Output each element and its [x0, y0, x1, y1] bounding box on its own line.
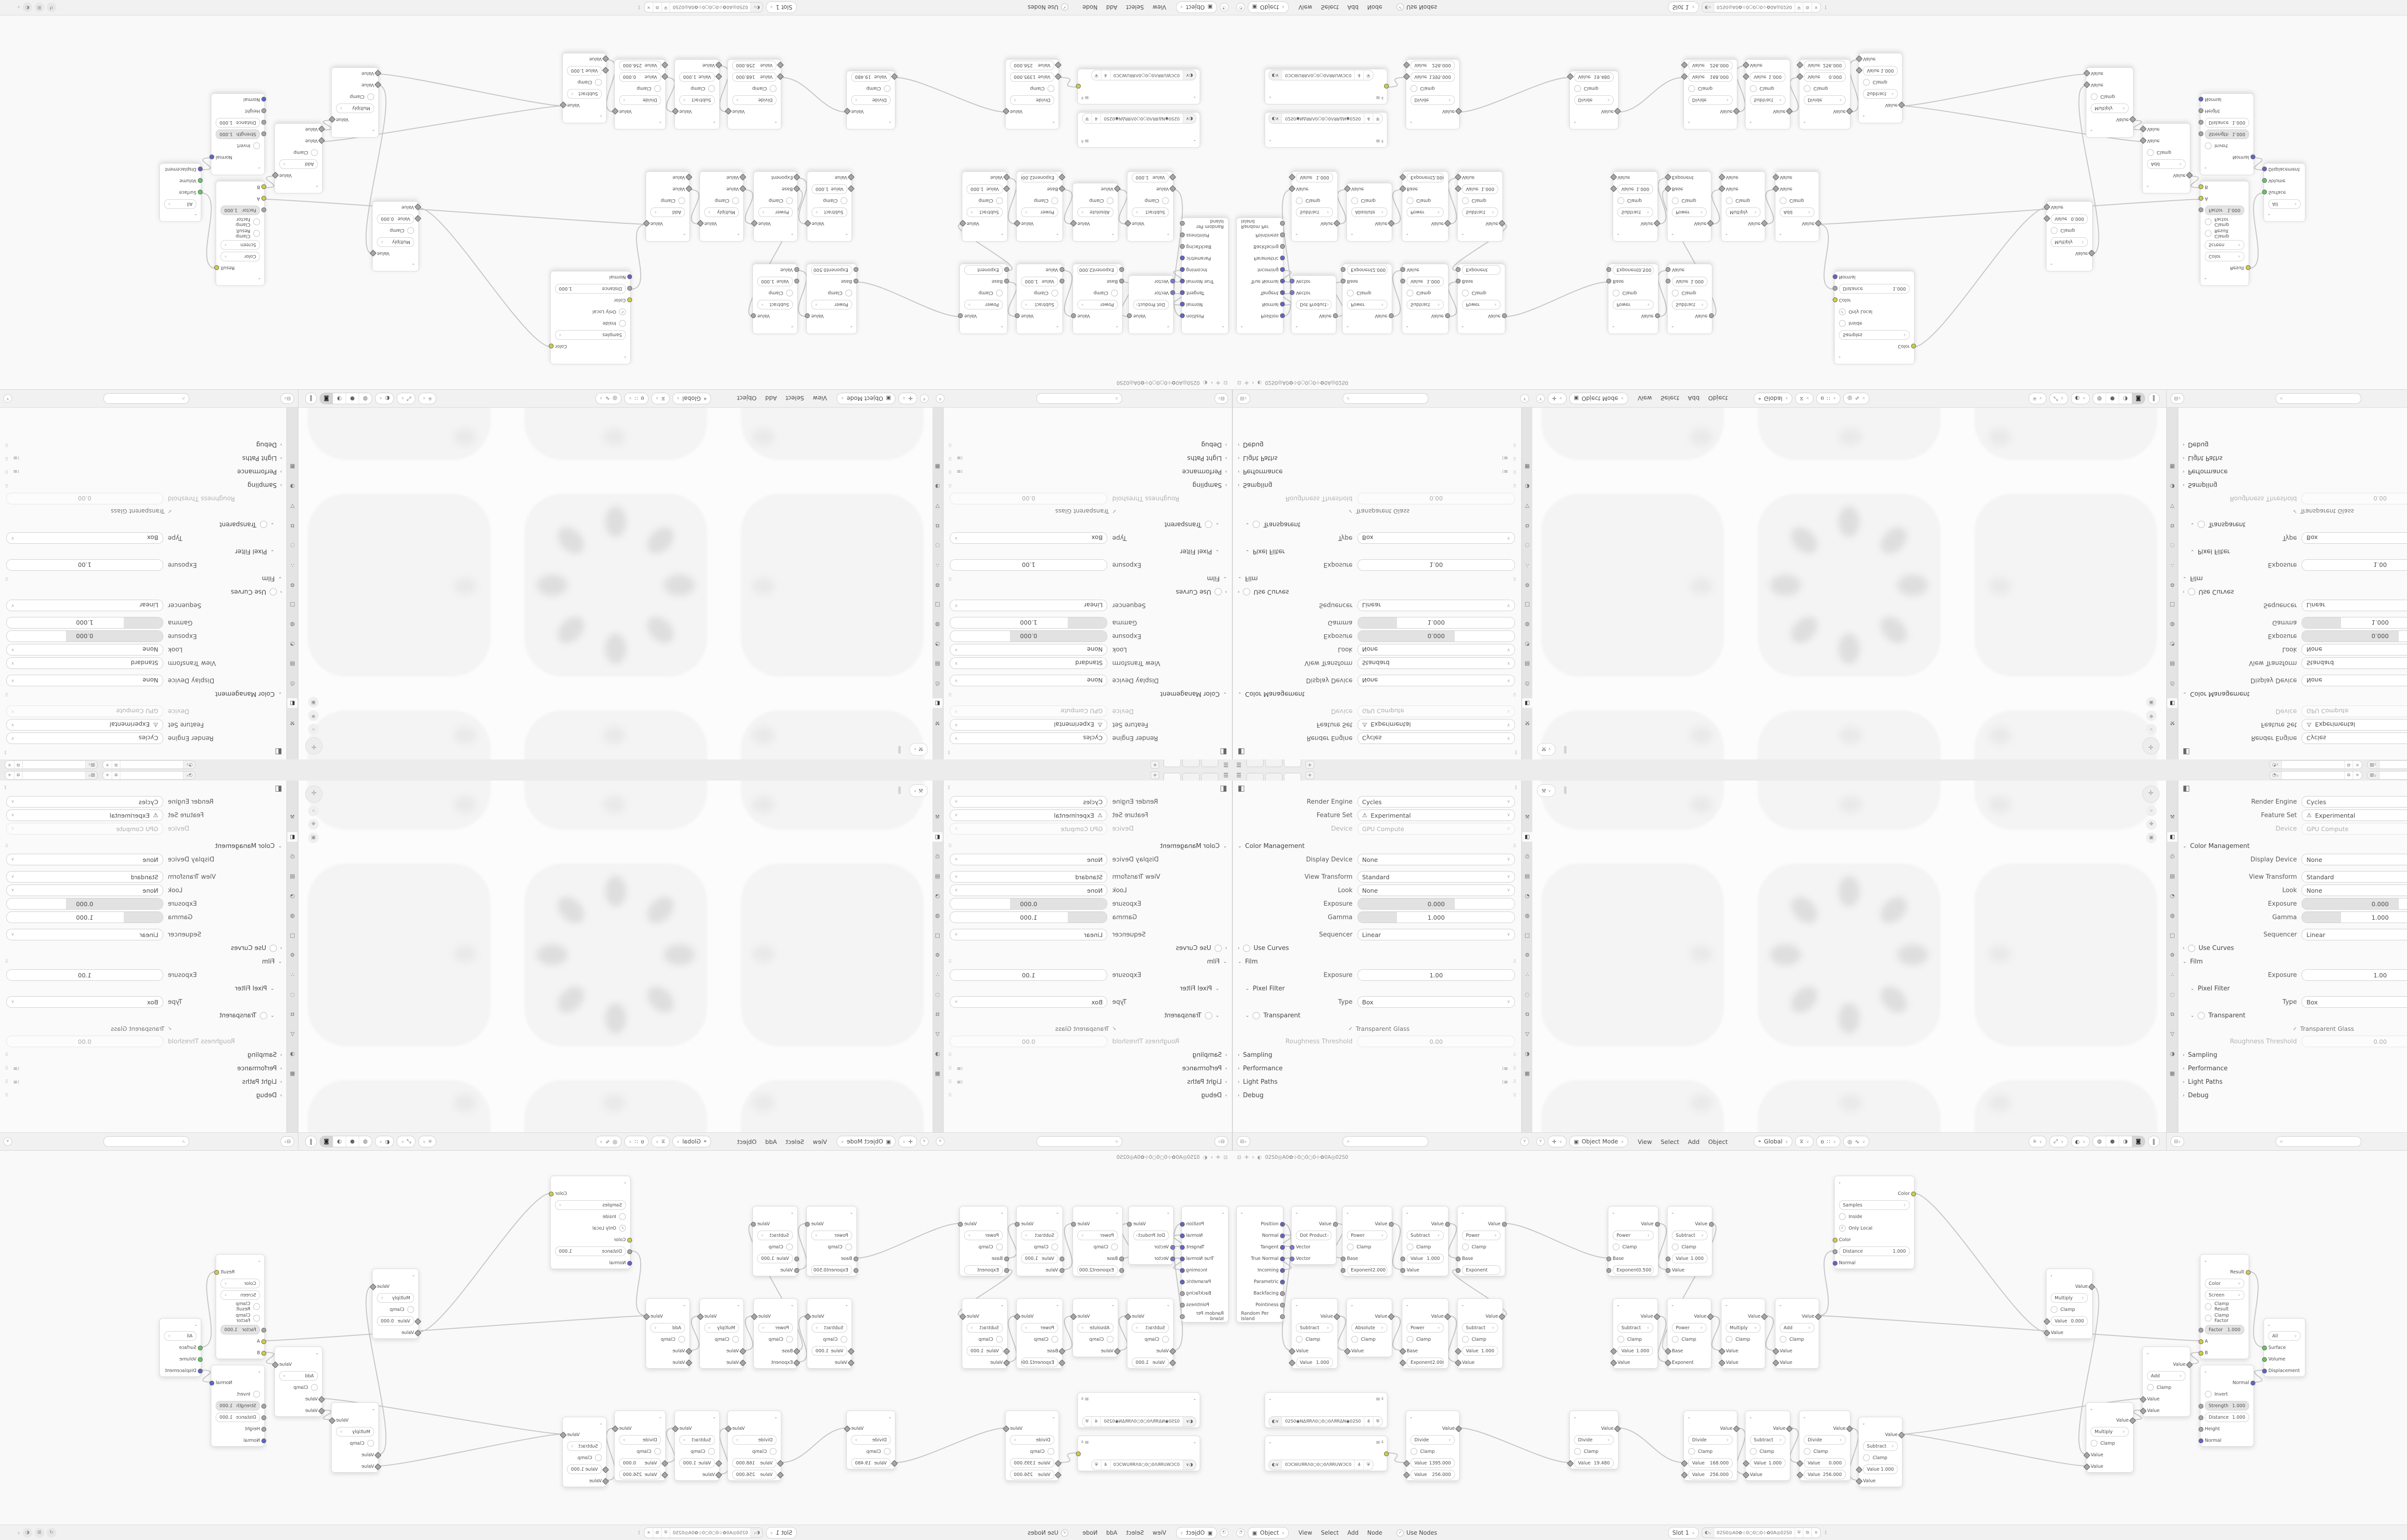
node-dropdown[interactable]: Power∨ — [1613, 1231, 1654, 1240]
dropdown[interactable]: Standard∨ — [950, 871, 1107, 883]
properties-tab-output[interactable]: ⎙ — [287, 679, 298, 688]
node-number-field[interactable]: Value256.000 — [1010, 1470, 1054, 1479]
preset-list-icon[interactable]: ⁝≡ — [13, 455, 19, 462]
menu-add[interactable]: Add — [765, 395, 777, 402]
socket[interactable] — [1003, 1360, 1010, 1366]
chevron-down-icon[interactable]: ⌄ — [2204, 1258, 2207, 1263]
socket[interactable] — [1015, 313, 1020, 318]
checkbox[interactable] — [270, 589, 277, 596]
socket[interactable] — [1455, 1425, 1462, 1432]
node[interactable]: ⌄ValueMultiply∨ClampValueValue — [331, 1402, 379, 1473]
socket[interactable] — [1665, 1360, 1671, 1366]
socket[interactable] — [261, 120, 266, 125]
chevron-down-icon[interactable]: ⌄ — [1056, 233, 1059, 238]
socket[interactable] — [272, 172, 279, 179]
scene-icon[interactable]: ◔∨ — [183, 761, 195, 769]
node-number-field[interactable]: Factor1.000 — [2205, 205, 2244, 215]
node-header[interactable]: ⌄ — [160, 1319, 201, 1330]
copy-icon[interactable]: ⧉ — [2344, 761, 2353, 769]
socket[interactable] — [1059, 1360, 1065, 1366]
checkbox-row[interactable]: ✓Transparent Glass — [2178, 1022, 2407, 1035]
chevron-down-icon[interactable]: ⌄ — [1000, 1303, 1004, 1307]
section-header[interactable]: ›Light Paths⁝≡⠿ — [2178, 451, 2407, 465]
node-number-field[interactable]: Value1.000 — [1863, 66, 1898, 76]
socket[interactable] — [1833, 1249, 1838, 1254]
socket[interactable] — [2083, 1452, 2090, 1459]
chevron-down-icon[interactable]: ⌄ — [2267, 1322, 2271, 1327]
dropdown[interactable]: ⚠Experimental∨ — [1358, 719, 1515, 731]
checkbox[interactable] — [407, 1306, 414, 1313]
checkbox[interactable] — [1839, 320, 1846, 327]
properties-tab-view-layer[interactable]: ▤ — [287, 659, 298, 668]
node[interactable]: ⌄ValuePower∨ClampBaseExponent — [1457, 264, 1505, 334]
navigation-gizmo[interactable]: ✛ — [2142, 785, 2160, 803]
socket[interactable] — [261, 1404, 266, 1409]
socket[interactable] — [560, 102, 567, 108]
properties-tab-tool[interactable]: ⚒ — [1522, 718, 1532, 728]
node-dropdown[interactable]: Subtract∨ — [1750, 95, 1786, 105]
node[interactable]: ⌄ValuePower∨ClampBaseExponent2.000 — [1073, 1206, 1123, 1276]
scene-icon[interactable]: ◔∨ — [2270, 761, 2281, 769]
chevron-down-icon[interactable]: ⌄ — [1346, 1210, 1349, 1215]
properties-tab-tool[interactable]: ⚒ — [2167, 812, 2177, 822]
socket[interactable] — [793, 1348, 800, 1355]
checkbox-row[interactable]: ✓Transparent Glass — [0, 1022, 287, 1035]
properties-tab-physics[interactable]: ◌ — [1522, 990, 1532, 1000]
shading-material-preview-icon[interactable]: ◑ — [333, 1136, 346, 1147]
section-header[interactable]: ›Performance⁝≡⠿ — [943, 1062, 1232, 1075]
node-dropdown[interactable]: Multiply∨ — [704, 1323, 739, 1333]
socket[interactable] — [1399, 174, 1406, 180]
datablock-name[interactable]: 02S0◉NΔЯRΛ0○0○0ΛЯRΔN◉02S0 — [1101, 114, 1183, 123]
toolbar-grip[interactable] — [898, 786, 901, 794]
properties-tab-material[interactable]: ◑ — [287, 481, 298, 491]
menu-select[interactable]: Select — [1321, 4, 1339, 11]
use-nodes-checkbox[interactable]: ✓Use Nodes — [1397, 4, 1437, 11]
socket[interactable] — [1567, 73, 1574, 80]
section-header[interactable]: ›Light Paths⁝≡⠿ — [943, 1075, 1232, 1089]
node-header[interactable]: ⌄ — [847, 117, 895, 129]
number-field[interactable]: 1.00 — [2302, 559, 2407, 571]
slider[interactable]: 0.000 — [6, 630, 163, 642]
users-count[interactable]: 4 — [1092, 1417, 1101, 1426]
copy-icon[interactable]: ⧉ — [112, 771, 120, 779]
properties-tab-object-data[interactable]: ▽ — [1522, 1029, 1532, 1039]
material-ball-icon[interactable]: ◐ — [23, 1528, 32, 1538]
node-header[interactable]: ⌄ — [1127, 230, 1173, 241]
socket[interactable] — [1898, 1432, 1905, 1438]
socket[interactable] — [612, 1425, 619, 1432]
dropdown[interactable]: None∨ — [6, 854, 163, 865]
slider[interactable]: 0.000 — [1358, 630, 1515, 642]
material-ball-icon[interactable]: ◐∨ — [1183, 1417, 1196, 1426]
chevron-down-icon[interactable]: ⌄ — [888, 1415, 892, 1419]
properties-tab-render[interactable]: ◧ — [287, 698, 298, 708]
material-ball-icon[interactable]: ◐∨ — [1269, 70, 1281, 80]
node[interactable]: ⌄ValueSubtract∨ClampValue1.000Value — [1016, 1206, 1063, 1276]
checkbox-row[interactable]: ✓Transparent Glass — [1233, 505, 1522, 518]
chevron-down-icon[interactable]: ⌄ — [1461, 326, 1464, 330]
node-header[interactable]: ⌄ — [1608, 1206, 1658, 1218]
node[interactable]: ⌄ValuePower∨ClampBaseExponent — [753, 171, 798, 242]
snap-target-button[interactable]: ⧖∨ — [1795, 393, 1813, 404]
editor-type-button[interactable]: ◔ — [1236, 1528, 1245, 1537]
properties-tab-render[interactable]: ◧ — [2167, 832, 2177, 842]
properties-tab-object-data[interactable]: ▽ — [932, 501, 943, 511]
node-dropdown[interactable]: Power∨ — [1407, 1323, 1444, 1333]
slider[interactable]: 1.000 — [2302, 617, 2407, 629]
socket[interactable] — [1076, 84, 1081, 89]
checkbox[interactable] — [1351, 197, 1358, 204]
socket[interactable] — [1786, 108, 1793, 115]
checkbox[interactable] — [1243, 589, 1250, 596]
socket[interactable] — [1833, 1261, 1838, 1266]
node-number-field[interactable]: Value1.000 — [567, 66, 602, 76]
socket[interactable] — [1743, 62, 1749, 68]
node[interactable]: ⌄ValuePower∨ClampBaseExponent2.000 — [1073, 264, 1123, 334]
chevron-down-icon[interactable]: ⌄ — [1166, 1303, 1170, 1307]
node[interactable]: ⌄ValueAbsolute∨ClampValue — [1073, 183, 1118, 242]
node-dropdown[interactable]: Power∨ — [758, 1323, 793, 1333]
snap-target-button[interactable]: ⧖∨ — [651, 393, 670, 404]
node-dropdown[interactable]: Subtract∨ — [1672, 1231, 1708, 1240]
node-number-field[interactable]: Strength1.000 — [2205, 129, 2249, 139]
node-number-field[interactable]: Exponent2.000 — [1347, 1265, 1387, 1275]
chevron-down-icon[interactable]: ∨ — [3, 394, 12, 403]
node-header[interactable]: ⌄ — [1721, 1299, 1765, 1310]
node-dropdown[interactable]: Subtract∨ — [1407, 1231, 1444, 1240]
search-input[interactable]: ⌕ — [1343, 1136, 1428, 1147]
socket[interactable] — [686, 1360, 692, 1366]
socket[interactable] — [1743, 73, 1749, 80]
properties-tab-tool[interactable]: ⚒ — [287, 812, 298, 822]
section-header[interactable]: ⌄Transparent — [2178, 1009, 2407, 1022]
socket[interactable] — [2140, 1396, 2147, 1403]
checkbox[interactable] — [1672, 1336, 1679, 1343]
viewlayer-selector[interactable]: ▨∨ ⧉ × — [5, 771, 98, 780]
socket[interactable] — [1773, 174, 1779, 180]
socket[interactable] — [627, 274, 632, 279]
chevron-down-icon[interactable]: ⌄ — [258, 167, 261, 171]
checkbox[interactable] — [1051, 1336, 1058, 1343]
section-header[interactable]: ›Light Paths⁝≡⠿ — [0, 451, 287, 465]
properties-tab-object[interactable]: □ — [932, 600, 943, 609]
mode-selector[interactable]: ▣Object Mode∨ — [1569, 393, 1628, 404]
node-dropdown[interactable]: Subtract∨ — [1462, 1323, 1498, 1333]
node-header[interactable]: ⌄▤ 4 — [1078, 92, 1200, 104]
socket[interactable] — [1280, 279, 1285, 283]
properties-tab-view-layer[interactable]: ▤ — [932, 659, 943, 668]
checkbox[interactable] — [2205, 230, 2212, 237]
pan-icon[interactable]: ✥ — [308, 819, 319, 830]
slot-selector[interactable]: Slot 1∨ — [1668, 1527, 1699, 1539]
node[interactable]: ⌄ValuePower∨ClampBaseExponent2.000 — [1342, 1206, 1392, 1276]
section-header[interactable]: ⌄Pixel Filter — [2178, 545, 2407, 558]
socket[interactable] — [1456, 1257, 1461, 1261]
socket[interactable] — [1743, 1472, 1749, 1478]
properties-tab-material[interactable]: ◑ — [932, 481, 943, 491]
copy-icon[interactable]: ⧉ — [1803, 2, 1811, 12]
checkbox[interactable] — [1407, 197, 1413, 204]
node-number-field[interactable]: Value0.000 — [2051, 1316, 2088, 1326]
camera-view-icon[interactable]: ▣ — [308, 697, 319, 707]
scene-icon[interactable]: ◔∨ — [2270, 771, 2281, 779]
node-number-field[interactable]: Value256.000 — [732, 61, 776, 70]
chevron-down-icon[interactable]: ⌄ — [1000, 1210, 1004, 1215]
socket[interactable] — [261, 1427, 266, 1432]
section-header[interactable]: ⌄Transparent — [1233, 518, 1522, 531]
node[interactable]: ⌄ValueAbsolute∨ClampValue — [1346, 1298, 1392, 1357]
section-header[interactable]: ⌄Film⠿ — [2178, 955, 2407, 968]
checkbox[interactable] — [732, 1336, 739, 1343]
checkbox[interactable] — [1048, 85, 1054, 92]
checkbox[interactable] — [1726, 1336, 1733, 1343]
checkbox[interactable] — [619, 320, 626, 327]
menu-view[interactable]: View — [1298, 4, 1312, 11]
shading-rendered-icon[interactable]: ◙ — [2132, 1136, 2145, 1147]
checkbox[interactable] — [407, 227, 414, 234]
node[interactable]: ⌄▤ 4◐∨02S0◉NΔЯRΛ0○0○0ΛЯRΔN◉02S04⛨ — [1265, 1392, 1387, 1428]
socket[interactable] — [1719, 1348, 1725, 1355]
node[interactable]: ⌄ValuePower∨ClampBaseExponent2.000 — [1402, 171, 1449, 242]
node-number-field[interactable]: Value256.000 — [1010, 61, 1054, 70]
dropdown[interactable]: Cycles∨ — [6, 732, 163, 744]
node-header[interactable]: ⌄ — [1402, 230, 1448, 241]
mode-selector[interactable]: ▣Object Mode∨ — [837, 1136, 895, 1147]
node-dropdown[interactable]: Divide∨ — [1688, 95, 1733, 105]
shader-type-selector[interactable]: ▣Object∨ — [1248, 1, 1289, 13]
dropdown[interactable]: Standard∨ — [2302, 657, 2407, 669]
node-number-field[interactable]: Value1.000 — [1462, 1346, 1498, 1356]
search-input[interactable]: ⌕ — [1036, 1136, 1122, 1147]
properties-tab-view-layer[interactable]: ▤ — [287, 872, 298, 881]
node-header[interactable]: ⌄ — [1402, 1299, 1448, 1310]
socket[interactable] — [793, 185, 800, 192]
pin-icon[interactable]: ⟟ — [948, 749, 950, 756]
checkbox[interactable] — [367, 1440, 374, 1447]
chevron-down-icon[interactable]: ⌄ — [845, 1303, 848, 1307]
section-header[interactable]: ›Sampling⠿ — [1233, 1048, 1522, 1062]
socket[interactable] — [2262, 1369, 2267, 1373]
socket[interactable] — [2129, 1417, 2136, 1424]
node-number-field[interactable]: Distance1.000 — [2205, 118, 2249, 128]
socket[interactable] — [804, 1313, 811, 1320]
close-icon[interactable]: × — [2353, 761, 2362, 769]
socket[interactable] — [1289, 185, 1295, 192]
users-count[interactable]: 4 — [1101, 70, 1111, 80]
node-number-field[interactable]: Exponent2.000 — [1407, 173, 1444, 182]
pin-icon[interactable]: ⟟ — [1825, 1529, 1826, 1536]
dropdown[interactable]: Linear∨ — [6, 600, 163, 611]
chevron-down-icon[interactable]: ⌄ — [1573, 1415, 1577, 1419]
node-dropdown[interactable]: Multiply∨ — [336, 103, 374, 113]
checkbox[interactable] — [1111, 1244, 1118, 1250]
properties-tab-particles[interactable]: ∴ — [932, 560, 943, 570]
socket[interactable] — [1610, 185, 1617, 192]
dropdown[interactable]: ⚠Experimental∨ — [2302, 719, 2407, 731]
properties-tab-scene[interactable]: ◔ — [932, 639, 943, 649]
socket[interactable] — [2129, 116, 2136, 123]
socket[interactable] — [602, 1478, 609, 1485]
menu-add[interactable]: Add — [1688, 395, 1699, 402]
node-dropdown[interactable]: Subtract∨ — [757, 1231, 793, 1240]
datablock-field[interactable]: ◐∨0ϽCWUЯRΛ0○0○0ΛЯRUWϽC04⛨ — [1268, 1460, 1373, 1470]
dropdown[interactable]: Cycles∨ — [2302, 732, 2407, 744]
dropdown[interactable]: None∨ — [950, 854, 1107, 865]
socket[interactable] — [329, 1417, 336, 1424]
properties-tab-physics[interactable]: ◌ — [2167, 540, 2177, 550]
socket[interactable] — [1180, 290, 1185, 295]
socket[interactable] — [1733, 108, 1740, 115]
shield-icon[interactable]: ⛨ — [1083, 1417, 1092, 1426]
node[interactable]: ⌄NormalInvertStrength1.000Distance1.000H… — [2200, 1365, 2254, 1447]
section-header[interactable]: ⌄Color Management⠿ — [943, 687, 1232, 701]
chevron-down-icon[interactable]: ⌄ — [737, 233, 740, 238]
node[interactable]: ⌄ValueSubtract∨ClampValue1.000Value — [1667, 264, 1712, 334]
shading-rendered-icon[interactable]: ◙ — [320, 393, 333, 404]
properties-tab-texture[interactable]: ▦ — [287, 1069, 298, 1078]
properties-tab-particles[interactable]: ∴ — [287, 970, 298, 980]
socket[interactable] — [2199, 207, 2203, 212]
datablock-name[interactable]: 02S0◉NΔЯRΛ0○0○0ΛЯRΔN◉02S0 — [1101, 1417, 1183, 1426]
node-dropdown[interactable]: Power∨ — [1613, 300, 1654, 309]
chevron-down-icon[interactable]: ⌄ — [1240, 1210, 1243, 1215]
node-header[interactable]: ⌄ — [615, 117, 665, 129]
section-header[interactable]: ›Sampling⠿ — [0, 478, 287, 492]
node-dropdown[interactable]: Multiply∨ — [336, 1427, 374, 1437]
pin-icon[interactable]: ⟟ — [4, 749, 6, 756]
node-header[interactable]: ⌄ — [675, 1411, 719, 1423]
chevron-down-icon[interactable]: ⌄ — [315, 185, 319, 190]
node-dropdown[interactable]: Divide∨ — [732, 95, 776, 105]
socket[interactable] — [958, 313, 963, 318]
node[interactable]: ⌄ValuePower∨ClampBaseExponent2.000 — [1016, 1298, 1063, 1369]
editor-type-button[interactable]: ◔ — [1220, 1528, 1229, 1537]
close-icon[interactable]: × — [645, 1528, 654, 1538]
socket[interactable] — [602, 55, 609, 62]
chevron-down-icon[interactable]: ⌄ — [2090, 129, 2093, 134]
socket[interactable] — [1681, 1472, 1688, 1478]
viewlayer-selector[interactable]: ▨∨ ⧉ × — [5, 760, 98, 769]
properties-tab-object-data[interactable]: ▽ — [2167, 501, 2177, 511]
scene-selector[interactable]: ◔∨ ⧉ × — [2269, 771, 2362, 780]
dropdown[interactable]: Cycles∨ — [2302, 796, 2407, 808]
menu-view[interactable]: View — [1152, 1529, 1166, 1536]
node-header[interactable]: ⌄ — [1006, 117, 1059, 129]
socket[interactable] — [370, 250, 376, 257]
socket[interactable] — [777, 62, 784, 68]
orientation-selector[interactable]: ⌖Global∨ — [673, 393, 711, 404]
node-header[interactable]: ⌄ — [2046, 1269, 2092, 1281]
pin-icon[interactable]: ⟟ — [1825, 4, 1826, 11]
node-dropdown[interactable]: All∨ — [2268, 1331, 2301, 1341]
chevron-down-icon[interactable]: ⌄ — [774, 121, 777, 126]
socket[interactable] — [1119, 279, 1124, 283]
menu-object[interactable]: Object — [1708, 1138, 1728, 1145]
shading-solid-icon[interactable]: ● — [346, 1136, 359, 1147]
checkbox[interactable] — [786, 290, 793, 296]
snap-target-button[interactable]: ⧖∨ — [651, 1136, 670, 1147]
node[interactable]: ⌄ValueSubtract∨ClampValue1.000Value — [1457, 1298, 1503, 1369]
node[interactable]: ⌄ValuePower∨ClampBaseExponent — [1667, 1298, 1711, 1369]
checkbox[interactable] — [786, 197, 793, 204]
zoom-icon[interactable]: ⌕ — [2146, 806, 2157, 816]
node-header[interactable]: ⌄ — [646, 230, 689, 241]
socket[interactable] — [1606, 1257, 1611, 1261]
socket[interactable] — [2199, 196, 2203, 201]
socket[interactable] — [1761, 1313, 1768, 1320]
workspace-tab-active[interactable] — [1284, 773, 1301, 781]
subsection-header[interactable]: ›Use Curves — [0, 941, 287, 955]
node-header[interactable]: ⌄ — [2086, 126, 2133, 137]
node-dropdown[interactable]: Add∨ — [279, 159, 318, 169]
node-dropdown[interactable]: Add∨ — [650, 1323, 685, 1333]
plus-icon[interactable]: ✛ — [1216, 1155, 1220, 1160]
node-header[interactable]: ⌄ — [1017, 1206, 1062, 1218]
socket[interactable] — [1180, 1280, 1185, 1284]
node-dropdown[interactable]: Dot Product∨ — [1133, 300, 1169, 309]
checkbox-checked-icon[interactable]: ✓ — [1348, 1026, 1353, 1032]
checkbox[interactable] — [1407, 1244, 1413, 1250]
socket[interactable] — [1180, 313, 1185, 318]
checkbox[interactable] — [2051, 227, 2058, 234]
socket[interactable] — [1456, 279, 1461, 283]
chevron-down-icon[interactable]: ∨ — [936, 394, 945, 403]
node-header[interactable]: ⌄ — [1458, 230, 1502, 241]
socket[interactable] — [2251, 1381, 2255, 1386]
node-number-field[interactable]: Exponent0.500 — [1613, 265, 1654, 275]
editor-type-button[interactable]: ◔ — [1236, 3, 1245, 12]
orientation-selector[interactable]: ⌖Global∨ — [673, 1136, 711, 1147]
subsection-header[interactable]: ›Use Curves — [1233, 941, 1522, 955]
section-header[interactable]: ›Light Paths⁝≡⠿ — [0, 1075, 287, 1089]
chevron-down-icon[interactable]: ⌄ — [1115, 1210, 1119, 1215]
node-dropdown[interactable]: Color∨ — [2205, 252, 2244, 261]
checkbox[interactable] — [786, 1336, 793, 1343]
socket[interactable] — [1773, 185, 1779, 192]
snap-grid-icon[interactable]: ⊞ — [35, 2, 44, 12]
node[interactable]: ⌄ValueSubtract∨ClampValue1.000Value — [1858, 53, 1902, 123]
properties-tab-output[interactable]: ⎙ — [2167, 679, 2177, 688]
chevron-down-icon[interactable]: ⌄ — [1406, 233, 1409, 238]
chevron-down-icon[interactable]: ⌄ — [1671, 233, 1674, 238]
node[interactable]: ⌄ResultColor∨Screen∨Clamp ResultClamp Fa… — [216, 181, 265, 286]
checkbox[interactable] — [654, 85, 661, 92]
search-input[interactable]: ⌕ — [104, 1136, 189, 1147]
node-dropdown[interactable]: Subtract∨ — [679, 95, 715, 105]
node-dropdown[interactable]: Multiply∨ — [377, 1293, 414, 1303]
section-header[interactable]: ⌄Pixel Filter — [943, 982, 1232, 995]
checkbox-row[interactable]: ✓Transparent Glass — [1233, 1022, 1522, 1035]
material-selector[interactable]: ◐∨ 02S0◎A0✿⊹0○0○0⊹✿0A◎02S0 ⛨ ⧉ × — [644, 2, 763, 13]
checkbox[interactable] — [1462, 1244, 1469, 1250]
socket[interactable] — [1180, 1291, 1185, 1296]
checkbox[interactable] — [1253, 521, 1260, 528]
use-nodes-checkbox[interactable]: ✓Use Nodes — [1028, 4, 1068, 11]
section-header[interactable]: ›Performance⁝≡⠿ — [2178, 465, 2407, 478]
properties-tab-scene[interactable]: ◔ — [287, 891, 298, 901]
node-dropdown[interactable]: Add∨ — [1780, 207, 1814, 217]
number-field[interactable]: 0.00 — [6, 493, 163, 504]
workspace-tab[interactable] — [1265, 773, 1282, 781]
square-icon[interactable]: ⊡ — [1224, 1155, 1228, 1160]
menu-select[interactable]: Select — [1661, 395, 1680, 402]
xray-toggle[interactable]: ◐∨ — [2071, 1136, 2090, 1147]
node-dropdown[interactable]: Add∨ — [2147, 159, 2186, 169]
socket[interactable] — [1614, 1425, 1621, 1432]
socket[interactable] — [1665, 185, 1671, 192]
node[interactable]: ⌄ValuePower∨ClampBaseExponent — [959, 264, 1008, 334]
